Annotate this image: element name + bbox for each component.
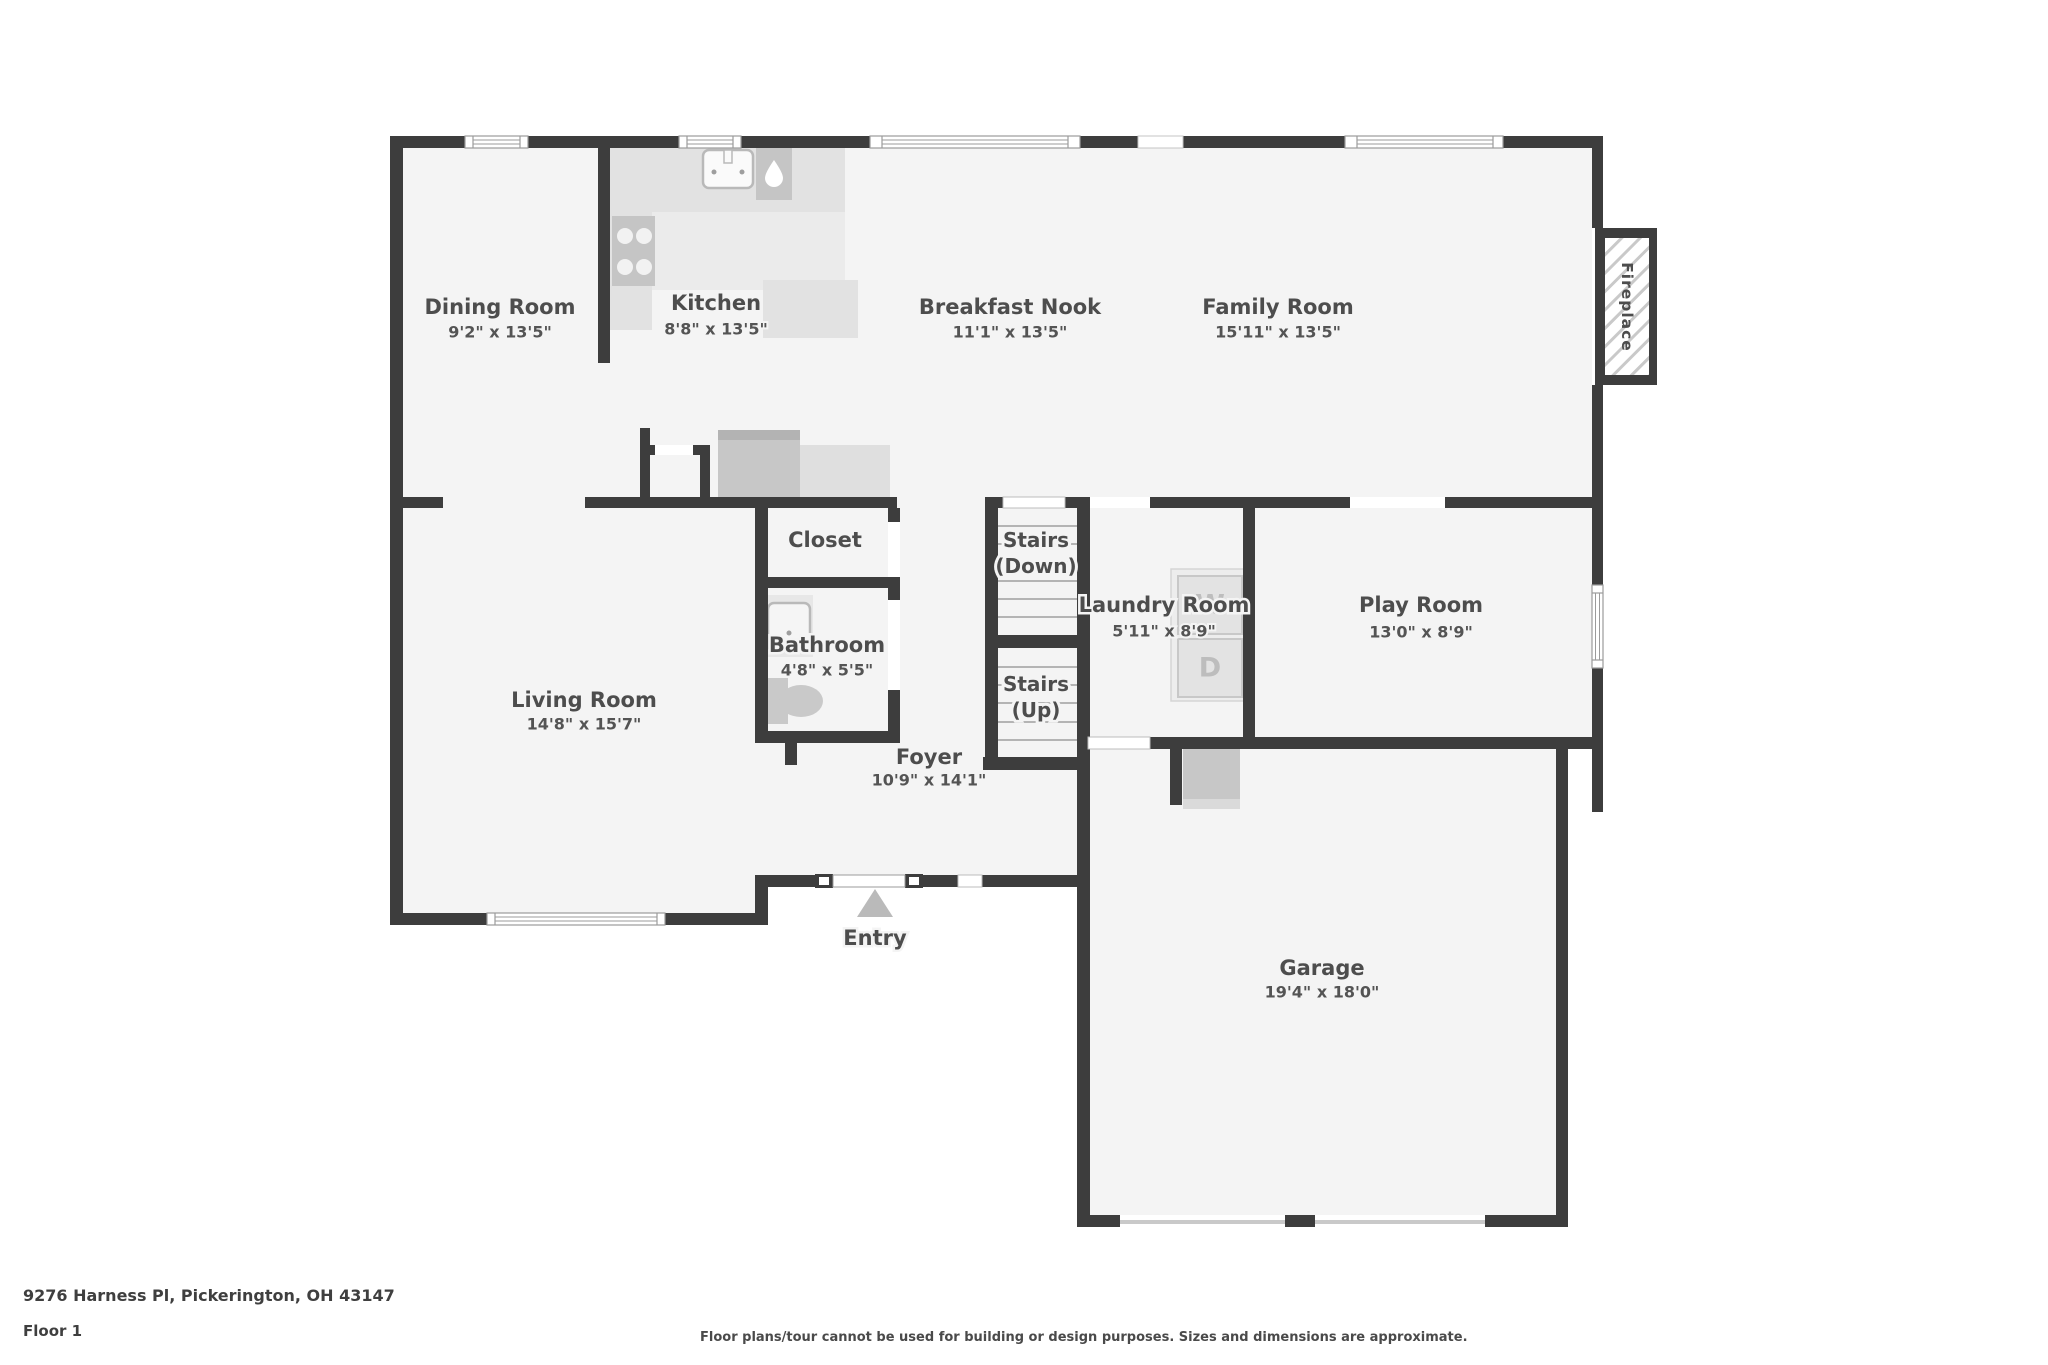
room-label-family: Family Room xyxy=(1202,295,1353,319)
room-dims-garage: 19'4" x 18'0" xyxy=(1265,983,1380,1002)
property-address: 9276 Harness Pl, Pickerington, OH 43147 xyxy=(23,1286,395,1305)
stove-icon xyxy=(612,216,655,286)
pantry-door-opening xyxy=(655,445,693,455)
water-heater-icon xyxy=(1183,747,1240,809)
stairs-down-label-1: Stairs xyxy=(1003,528,1069,552)
garage-door-right xyxy=(1315,1220,1485,1224)
room-dims-foyer: 10'9" x 14'1" xyxy=(872,771,987,790)
window-play-room xyxy=(1592,585,1603,668)
room-dims-laundry: 5'11" x 8'9" xyxy=(1112,622,1216,641)
fireplace-label: Fireplace xyxy=(1618,262,1636,352)
room-dims-dining: 9'2" x 13'5" xyxy=(448,323,552,342)
room-label-living: Living Room xyxy=(511,688,657,712)
disclaimer-text: Floor plans/tour cannot be used for buil… xyxy=(700,1330,1468,1345)
play-room-opening xyxy=(1350,497,1445,508)
room-label-play: Play Room xyxy=(1359,593,1483,617)
room-dims-play: 13'0" x 8'9" xyxy=(1369,623,1473,642)
window-family xyxy=(1345,136,1503,148)
counter-segment xyxy=(800,445,890,497)
room-dims-living: 14'8" x 15'7" xyxy=(527,715,642,734)
window-breakfast xyxy=(870,136,1080,148)
floor-plan-canvas: W D xyxy=(0,0,2048,1365)
window-dining xyxy=(465,136,528,148)
stairs-opening xyxy=(1003,497,1065,508)
kitchen-island xyxy=(763,280,858,338)
refrigerator-icon xyxy=(718,430,800,497)
entry-arrow-icon xyxy=(857,889,893,917)
room-label-breakfast: Breakfast Nook xyxy=(919,295,1102,319)
floor-plan-page: W D xyxy=(0,0,2048,1365)
window-living xyxy=(487,913,665,925)
room-label-garage: Garage xyxy=(1279,956,1364,980)
laundry-garage-door xyxy=(1088,737,1150,749)
stairs-down-label-2: (Down) xyxy=(995,554,1076,578)
room-label-foyer: Foyer xyxy=(896,745,963,769)
room-label-laundry: Laundry Room xyxy=(1079,593,1250,617)
room-dims-bathroom: 4'8" x 5'5" xyxy=(781,661,873,680)
patio-door-opening xyxy=(1138,136,1183,148)
stairs-up-label-1: Stairs xyxy=(1003,672,1069,696)
room-dims-kitchen: 8'8" x 13'5" xyxy=(664,320,768,339)
window-kitchen xyxy=(679,136,741,148)
entry-door xyxy=(819,875,919,887)
stairs-up-label-2: (Up) xyxy=(1012,698,1061,722)
foyer-side-door xyxy=(958,875,982,887)
garage-door-left xyxy=(1120,1220,1285,1224)
dryer-letter: D xyxy=(1199,653,1221,684)
room-label-kitchen: Kitchen xyxy=(671,291,761,315)
room-label-bathroom: Bathroom xyxy=(769,633,885,657)
room-dims-family: 15'11" x 13'5" xyxy=(1215,323,1341,342)
room-dims-breakfast: 11'1" x 13'5" xyxy=(953,323,1068,342)
fireplace: Fireplace xyxy=(1595,228,1657,385)
dishwasher-icon xyxy=(756,148,792,200)
bathroom-door-opening xyxy=(888,600,900,690)
floor-number-label: Floor 1 xyxy=(23,1322,82,1340)
entry-label: Entry xyxy=(843,926,907,950)
closet-door-opening xyxy=(888,522,900,577)
room-label-closet: Closet xyxy=(788,528,862,552)
room-label-dining: Dining Room xyxy=(425,295,576,319)
kitchen-sink-icon xyxy=(703,150,753,188)
